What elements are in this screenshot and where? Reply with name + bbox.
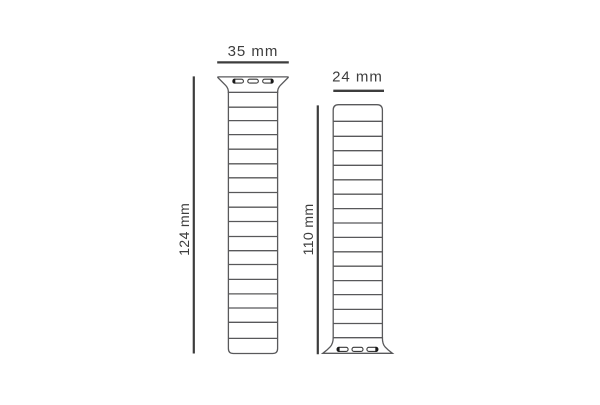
svg-text:35 mm: 35 mm: [228, 43, 279, 60]
svg-text:124 mm: 124 mm: [177, 203, 193, 256]
svg-text:110 mm: 110 mm: [301, 204, 317, 256]
svg-text:24 mm: 24 mm: [332, 69, 383, 86]
